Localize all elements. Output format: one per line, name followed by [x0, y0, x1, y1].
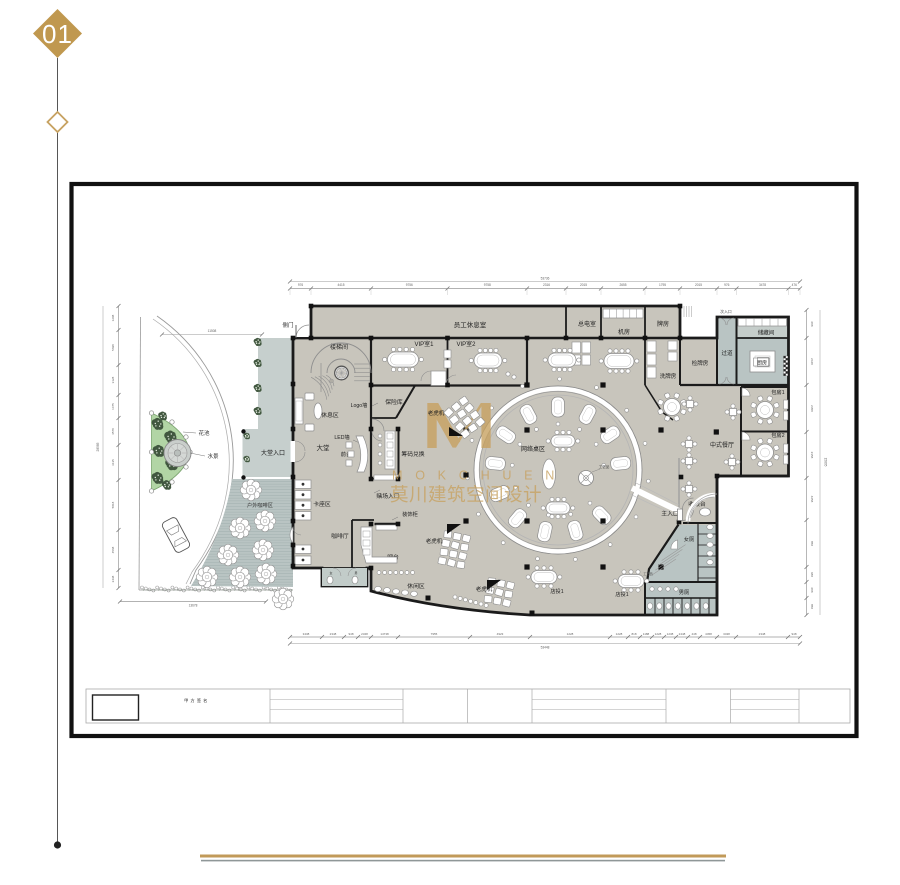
svg-text:主入口: 主入口 — [661, 510, 679, 518]
svg-text:1228: 1228 — [567, 632, 574, 636]
svg-text:大堂: 大堂 — [317, 443, 331, 452]
svg-text:洗牌房: 洗牌房 — [660, 372, 677, 380]
svg-text:甲 方 签 名: 甲 方 签 名 — [184, 697, 208, 704]
svg-text:员工休息室: 员工休息室 — [454, 320, 487, 329]
svg-text:948: 948 — [348, 632, 353, 636]
svg-text:女厕: 女厕 — [684, 535, 694, 543]
svg-text:包房1: 包房1 — [771, 388, 784, 396]
svg-text:水景: 水景 — [207, 452, 219, 460]
svg-text:858: 858 — [810, 541, 814, 546]
svg-text:3128: 3128 — [111, 376, 115, 383]
svg-text:休闲区: 休闲区 — [407, 582, 425, 590]
svg-text:店投1: 店投1 — [550, 587, 563, 595]
svg-text:储藏间: 储藏间 — [758, 329, 775, 337]
svg-text:包房2: 包房2 — [771, 431, 784, 439]
svg-text:2358: 2358 — [810, 405, 814, 412]
svg-text:818: 818 — [631, 632, 636, 636]
svg-text:女: 女 — [329, 570, 332, 575]
svg-text:2358: 2358 — [810, 452, 814, 459]
svg-text:01: 01 — [42, 19, 73, 49]
svg-text:休息区: 休息区 — [321, 411, 339, 419]
svg-text:卡座区: 卡座区 — [313, 500, 331, 508]
svg-text:1208: 1208 — [111, 314, 115, 321]
svg-text:9758: 9758 — [484, 283, 491, 287]
svg-text:4568: 4568 — [111, 546, 115, 553]
svg-text:中式餐厅: 中式餐厅 — [710, 441, 734, 449]
svg-text:4458: 4458 — [705, 632, 712, 636]
svg-text:28585: 28585 — [96, 442, 100, 451]
svg-text:户外咖啡区: 户外咖啡区 — [247, 501, 273, 509]
svg-text:老虎机: 老虎机 — [476, 585, 493, 593]
svg-text:检牌房: 检牌房 — [692, 359, 709, 367]
svg-text:2348: 2348 — [361, 632, 368, 636]
svg-text:7955: 7955 — [431, 632, 438, 636]
svg-text:3478: 3478 — [759, 283, 766, 287]
svg-text:网络桌区: 网络桌区 — [521, 445, 545, 453]
svg-text:大堂入口: 大堂入口 — [261, 449, 285, 457]
svg-text:476: 476 — [792, 283, 798, 287]
svg-text:4258: 4258 — [810, 496, 814, 503]
svg-text:店投1: 店投1 — [615, 590, 628, 598]
svg-text:Logo墙: Logo墙 — [351, 401, 368, 409]
svg-text:948: 948 — [791, 632, 796, 636]
svg-text:LED墙: LED墙 — [334, 433, 349, 441]
svg-text:976: 976 — [298, 283, 304, 287]
svg-text:2015: 2015 — [580, 283, 587, 287]
svg-text:侧门: 侧门 — [282, 321, 293, 329]
svg-text:2348: 2348 — [330, 632, 337, 636]
svg-text:2015: 2015 — [695, 283, 702, 287]
svg-text:厨房: 厨房 — [757, 360, 767, 367]
svg-text:筹码兑换: 筹码兑换 — [401, 450, 424, 458]
svg-text:工艺品: 工艺品 — [643, 571, 653, 576]
svg-text:688: 688 — [810, 572, 814, 577]
svg-text:花池: 花池 — [198, 429, 210, 437]
svg-text:2438: 2438 — [111, 575, 115, 582]
svg-text:858: 858 — [810, 604, 814, 609]
svg-text:1228: 1228 — [655, 632, 662, 636]
svg-text:老虎机: 老虎机 — [426, 537, 443, 545]
svg-text:老虎机: 老虎机 — [428, 409, 445, 417]
svg-text:保险库: 保险库 — [385, 398, 403, 406]
svg-text:688: 688 — [810, 321, 814, 326]
svg-text:15805: 15805 — [824, 458, 828, 467]
svg-text:男厕: 男厕 — [679, 589, 689, 596]
svg-text:3135: 3135 — [111, 459, 115, 466]
svg-text:2316: 2316 — [543, 283, 550, 287]
svg-text:4578: 4578 — [111, 428, 115, 435]
svg-text:1228: 1228 — [616, 632, 623, 636]
svg-text:总电室: 总电室 — [578, 320, 596, 328]
svg-text:工艺品: 工艺品 — [599, 464, 610, 469]
svg-text:13678: 13678 — [189, 604, 198, 608]
svg-text:过道: 过道 — [721, 349, 733, 357]
svg-text:2348: 2348 — [759, 632, 766, 636]
svg-text:53448: 53448 — [541, 646, 550, 650]
svg-text:4923: 4923 — [497, 632, 504, 636]
svg-text:莫川建筑空间设计: 莫川建筑空间设计 — [390, 484, 542, 505]
svg-text:1188: 1188 — [643, 632, 650, 636]
svg-text:M O K C H U E N: M O K C H U E N — [392, 469, 559, 483]
svg-text:2655: 2655 — [619, 283, 626, 287]
svg-text:688: 688 — [810, 587, 814, 592]
svg-text:14738: 14738 — [380, 632, 389, 636]
svg-text:5698: 5698 — [111, 344, 115, 351]
svg-text:1795: 1795 — [659, 283, 666, 287]
svg-text:次入口: 次入口 — [720, 309, 732, 314]
svg-text:3438: 3438 — [723, 632, 730, 636]
svg-text:装饰柜: 装饰柜 — [402, 510, 418, 518]
svg-text:448: 448 — [691, 632, 696, 636]
svg-text:牌房: 牌房 — [657, 320, 669, 328]
svg-text:11508: 11508 — [208, 329, 217, 333]
svg-text:5818: 5818 — [111, 501, 115, 508]
svg-text:机房: 机房 — [618, 328, 630, 336]
svg-text:男: 男 — [354, 570, 357, 575]
svg-text:3438: 3438 — [303, 632, 310, 636]
svg-text:2448: 2448 — [810, 358, 814, 365]
svg-text:976: 976 — [724, 283, 730, 287]
svg-text:9756: 9756 — [406, 283, 413, 287]
svg-text:53736: 53736 — [541, 277, 550, 281]
svg-text:VIP室1: VIP室1 — [414, 340, 434, 348]
svg-text:1238: 1238 — [667, 632, 674, 636]
svg-text:2448: 2448 — [679, 632, 686, 636]
svg-text:咖啡厅: 咖啡厅 — [331, 532, 349, 540]
svg-text:4415: 4415 — [337, 283, 344, 287]
svg-text:1475: 1475 — [111, 403, 115, 410]
svg-text:VIP室2: VIP室2 — [456, 340, 476, 348]
